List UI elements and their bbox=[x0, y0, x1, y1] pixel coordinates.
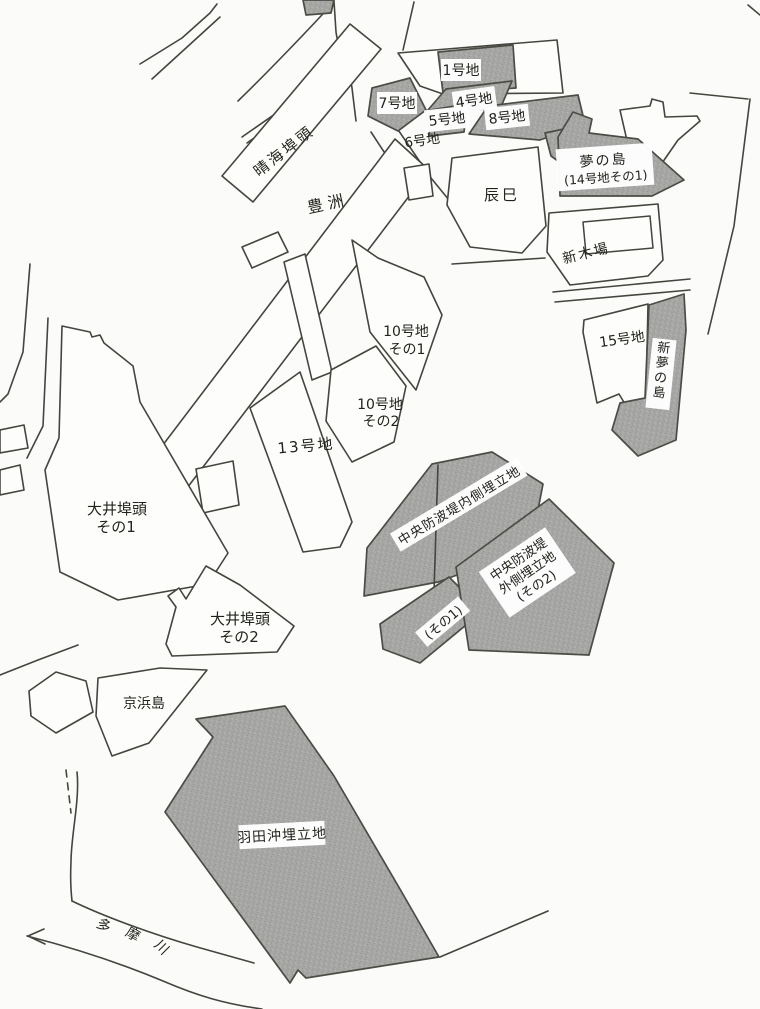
label-keihinjima: 京浜島 bbox=[123, 696, 165, 712]
label-yumenoshima: 夢の島 bbox=[579, 151, 628, 170]
polygon-pier-stub-a bbox=[0, 425, 28, 453]
label-tatsumi: 辰巳 bbox=[484, 186, 520, 204]
label-lot10-2-line2: その2 bbox=[363, 414, 400, 430]
polygon-top-edge-fragment bbox=[303, 0, 334, 15]
label-oi-wharf-2-line2: その2 bbox=[219, 628, 259, 646]
label-lot1: 1号地 bbox=[443, 63, 480, 79]
label-oi-wharf-1-line1: 大井埠頭 bbox=[87, 500, 147, 518]
label-oi-wharf-1-line2: その1 bbox=[96, 518, 136, 536]
label-lot10-1-line1: 10号地 bbox=[383, 324, 429, 340]
landfill-map-page: 晴海埠頭 豊洲 1号地 7号地 4号地 5号地 8号地 6号地 辰巳 夢の島 (… bbox=[0, 0, 760, 1009]
polygon-pier-stub-b bbox=[0, 465, 24, 495]
polygon-toyosu-pier-stub bbox=[404, 164, 433, 200]
label-oi-wharf-2-line1: 大井埠頭 bbox=[210, 610, 270, 628]
label-lot10-2-line1: 10号地 bbox=[357, 397, 403, 413]
label-lot7: 7号地 bbox=[379, 96, 416, 112]
landfill-map-svg: 晴海埠頭 豊洲 1号地 7号地 4号地 5号地 8号地 6号地 辰巳 夢の島 (… bbox=[0, 0, 760, 1009]
polygon-toyosu-south-stub bbox=[196, 461, 239, 513]
label-lot10-1-line2: その1 bbox=[389, 342, 426, 358]
